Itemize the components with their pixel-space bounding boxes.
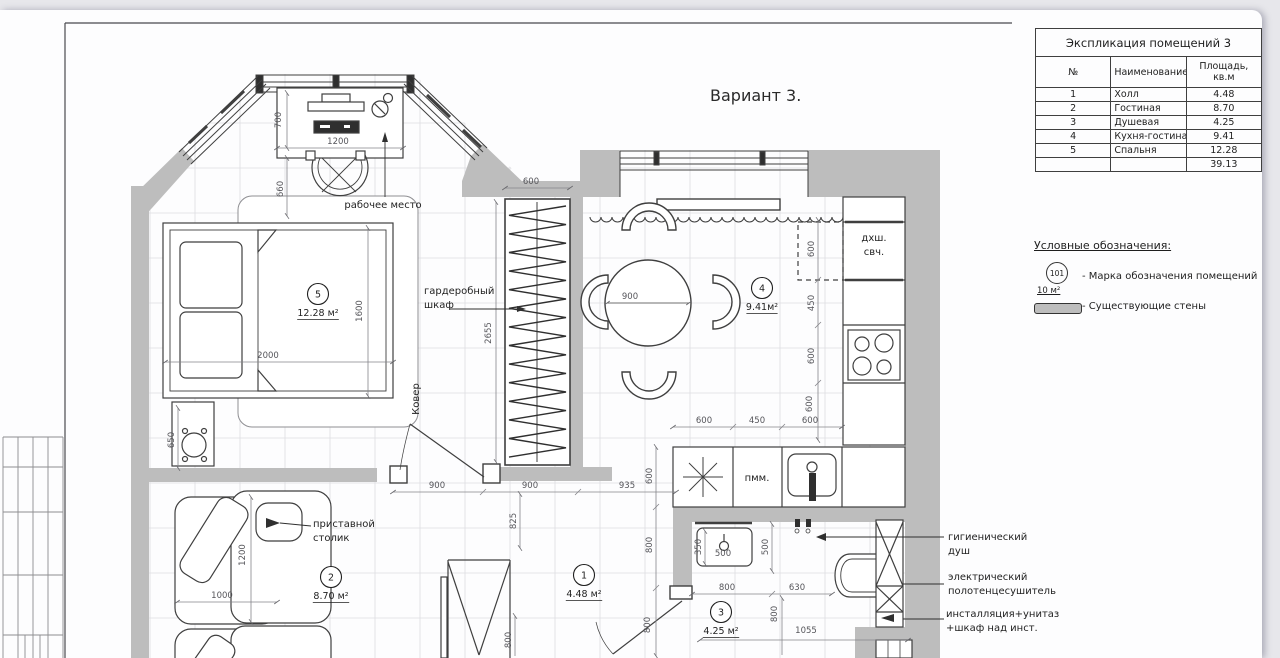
dimension-label: 450 [807, 295, 817, 311]
dimension-label: 600 [805, 396, 815, 412]
dimension-label: 900 [429, 481, 445, 491]
dimension-label: 660 [276, 181, 286, 197]
plan-label: рабочее место [344, 200, 421, 211]
screenshot-page: 7001200660200016006506002655900900900935… [0, 0, 1280, 658]
dimension-label: 800 [719, 583, 735, 593]
table-row: 3Душевая4.25 [1036, 116, 1262, 130]
side-table [256, 503, 302, 541]
plan-label: столик [313, 533, 349, 544]
dimension-label: 800 [645, 537, 655, 553]
table-title: Экспликация помещений 3 [1036, 29, 1262, 57]
dining-chair [622, 372, 676, 399]
dimension-label: 800 [770, 606, 780, 622]
table-row: 4Кухня-гостиная9.41 [1036, 130, 1262, 144]
column-header-name: Наименование [1111, 57, 1186, 88]
appliance-mark [683, 457, 723, 497]
dimension-label: 2000 [257, 351, 279, 361]
existing-wall-swatch [1034, 303, 1082, 314]
column-header-num: № [1036, 57, 1111, 88]
pillow [180, 312, 242, 378]
dimension-label: 500 [761, 539, 771, 555]
dimension-label: 1000 [211, 591, 233, 601]
spec-table-body: 1Холл4.482Гостиная8.703Душевая4.254Кухня… [1036, 88, 1262, 158]
dimension-label: 600 [807, 241, 817, 257]
explication-table: Экспликация помещений 3 № Наименование П… [1035, 28, 1262, 172]
room-area-label: 12.28 м² [297, 308, 338, 319]
plan-label: пмм. [745, 473, 770, 484]
plan-label: Ковер [411, 383, 422, 415]
room-tag-number: 4 [759, 284, 765, 295]
plan-label: шкаф [424, 300, 454, 311]
room-tag-number: 5 [315, 290, 321, 301]
room-mark-label: - Марка обозначения помещений [1082, 271, 1257, 282]
room-mark-area: 10 м² [1037, 286, 1060, 296]
fridge-dashed-zone [798, 222, 843, 280]
monitor [308, 102, 364, 111]
dimension-label: 600 [807, 348, 817, 364]
room-tag-number: 2 [328, 573, 334, 584]
plan-label: душ [948, 546, 970, 557]
table-total-row: 39.13 [1036, 158, 1262, 172]
dining-chair [713, 275, 740, 329]
dimension-label: 630 [789, 583, 805, 593]
dimension-label: 350 [694, 539, 704, 555]
plan-label: гигиенический [948, 532, 1027, 543]
installation-box [876, 520, 903, 627]
dimension-label: 600 [696, 416, 712, 426]
dimension-label: 1200 [327, 137, 349, 147]
balcony-tile-grid [3, 437, 63, 658]
furniture [163, 88, 912, 658]
plan-label: полотенцесушитель [948, 586, 1056, 597]
dimension-label: 500 [715, 549, 731, 559]
dimension-label: 800 [643, 617, 653, 633]
sofa-chaise-2 [231, 626, 331, 658]
plan-label: электрический [948, 572, 1027, 583]
room-mark-symbol: 101 [1046, 262, 1068, 284]
plan-label: приставной [313, 519, 375, 530]
table-row: 5Спальня12.28 [1036, 144, 1262, 158]
room-area-label: 8.70 м² [313, 591, 348, 602]
plan-label: гардеробный [424, 286, 494, 297]
table-row: 1Холл4.48 [1036, 88, 1262, 102]
column-header-area: Площадь, кв.м [1186, 57, 1261, 88]
dimension-label: 800 [504, 632, 514, 648]
plan-label: дхш. [861, 233, 886, 244]
dimension-label: 600 [802, 416, 818, 426]
room-area-label: 9.41м² [746, 302, 778, 313]
dimension-label: 650 [167, 432, 177, 448]
pillow [180, 242, 242, 308]
legend-heading: Условные обозначения: [1034, 239, 1171, 252]
plan-label: свч. [864, 247, 884, 258]
table-row: 2Гостиная8.70 [1036, 102, 1262, 116]
dimension-label: 2655 [484, 322, 494, 344]
dimension-label: 1600 [355, 300, 365, 322]
hall-mirror [441, 560, 510, 658]
dimension-label: 900 [522, 481, 538, 491]
dimension-label: 600 [523, 177, 539, 187]
room-area-label: 4.25 м² [703, 626, 738, 637]
dimension-label: 450 [749, 416, 765, 426]
plan-label: +шкаф над инст. [946, 623, 1038, 634]
dimension-label: 900 [622, 292, 638, 302]
table-total-value: 39.13 [1186, 158, 1261, 172]
dimension-label: 700 [274, 112, 284, 128]
dimension-label: 1200 [238, 544, 248, 566]
room-tag-number: 1 [581, 571, 587, 582]
existing-wall-label: - Существующие стены [1082, 301, 1206, 312]
dining-chair [581, 275, 608, 329]
room-tag-number: 3 [718, 608, 724, 619]
plan-label: инсталляция+унитаз [946, 609, 1059, 620]
dimension-label: 825 [509, 513, 519, 529]
dimension-label: 935 [619, 481, 635, 491]
room-area-label: 4.48 м² [566, 589, 601, 600]
bedroom-door [410, 424, 484, 477]
dimension-label: 1055 [795, 626, 817, 636]
variant-title: Вариант 3. [710, 86, 801, 105]
dimension-label: 600 [645, 468, 655, 484]
hygienic-shower-mark [816, 533, 826, 541]
